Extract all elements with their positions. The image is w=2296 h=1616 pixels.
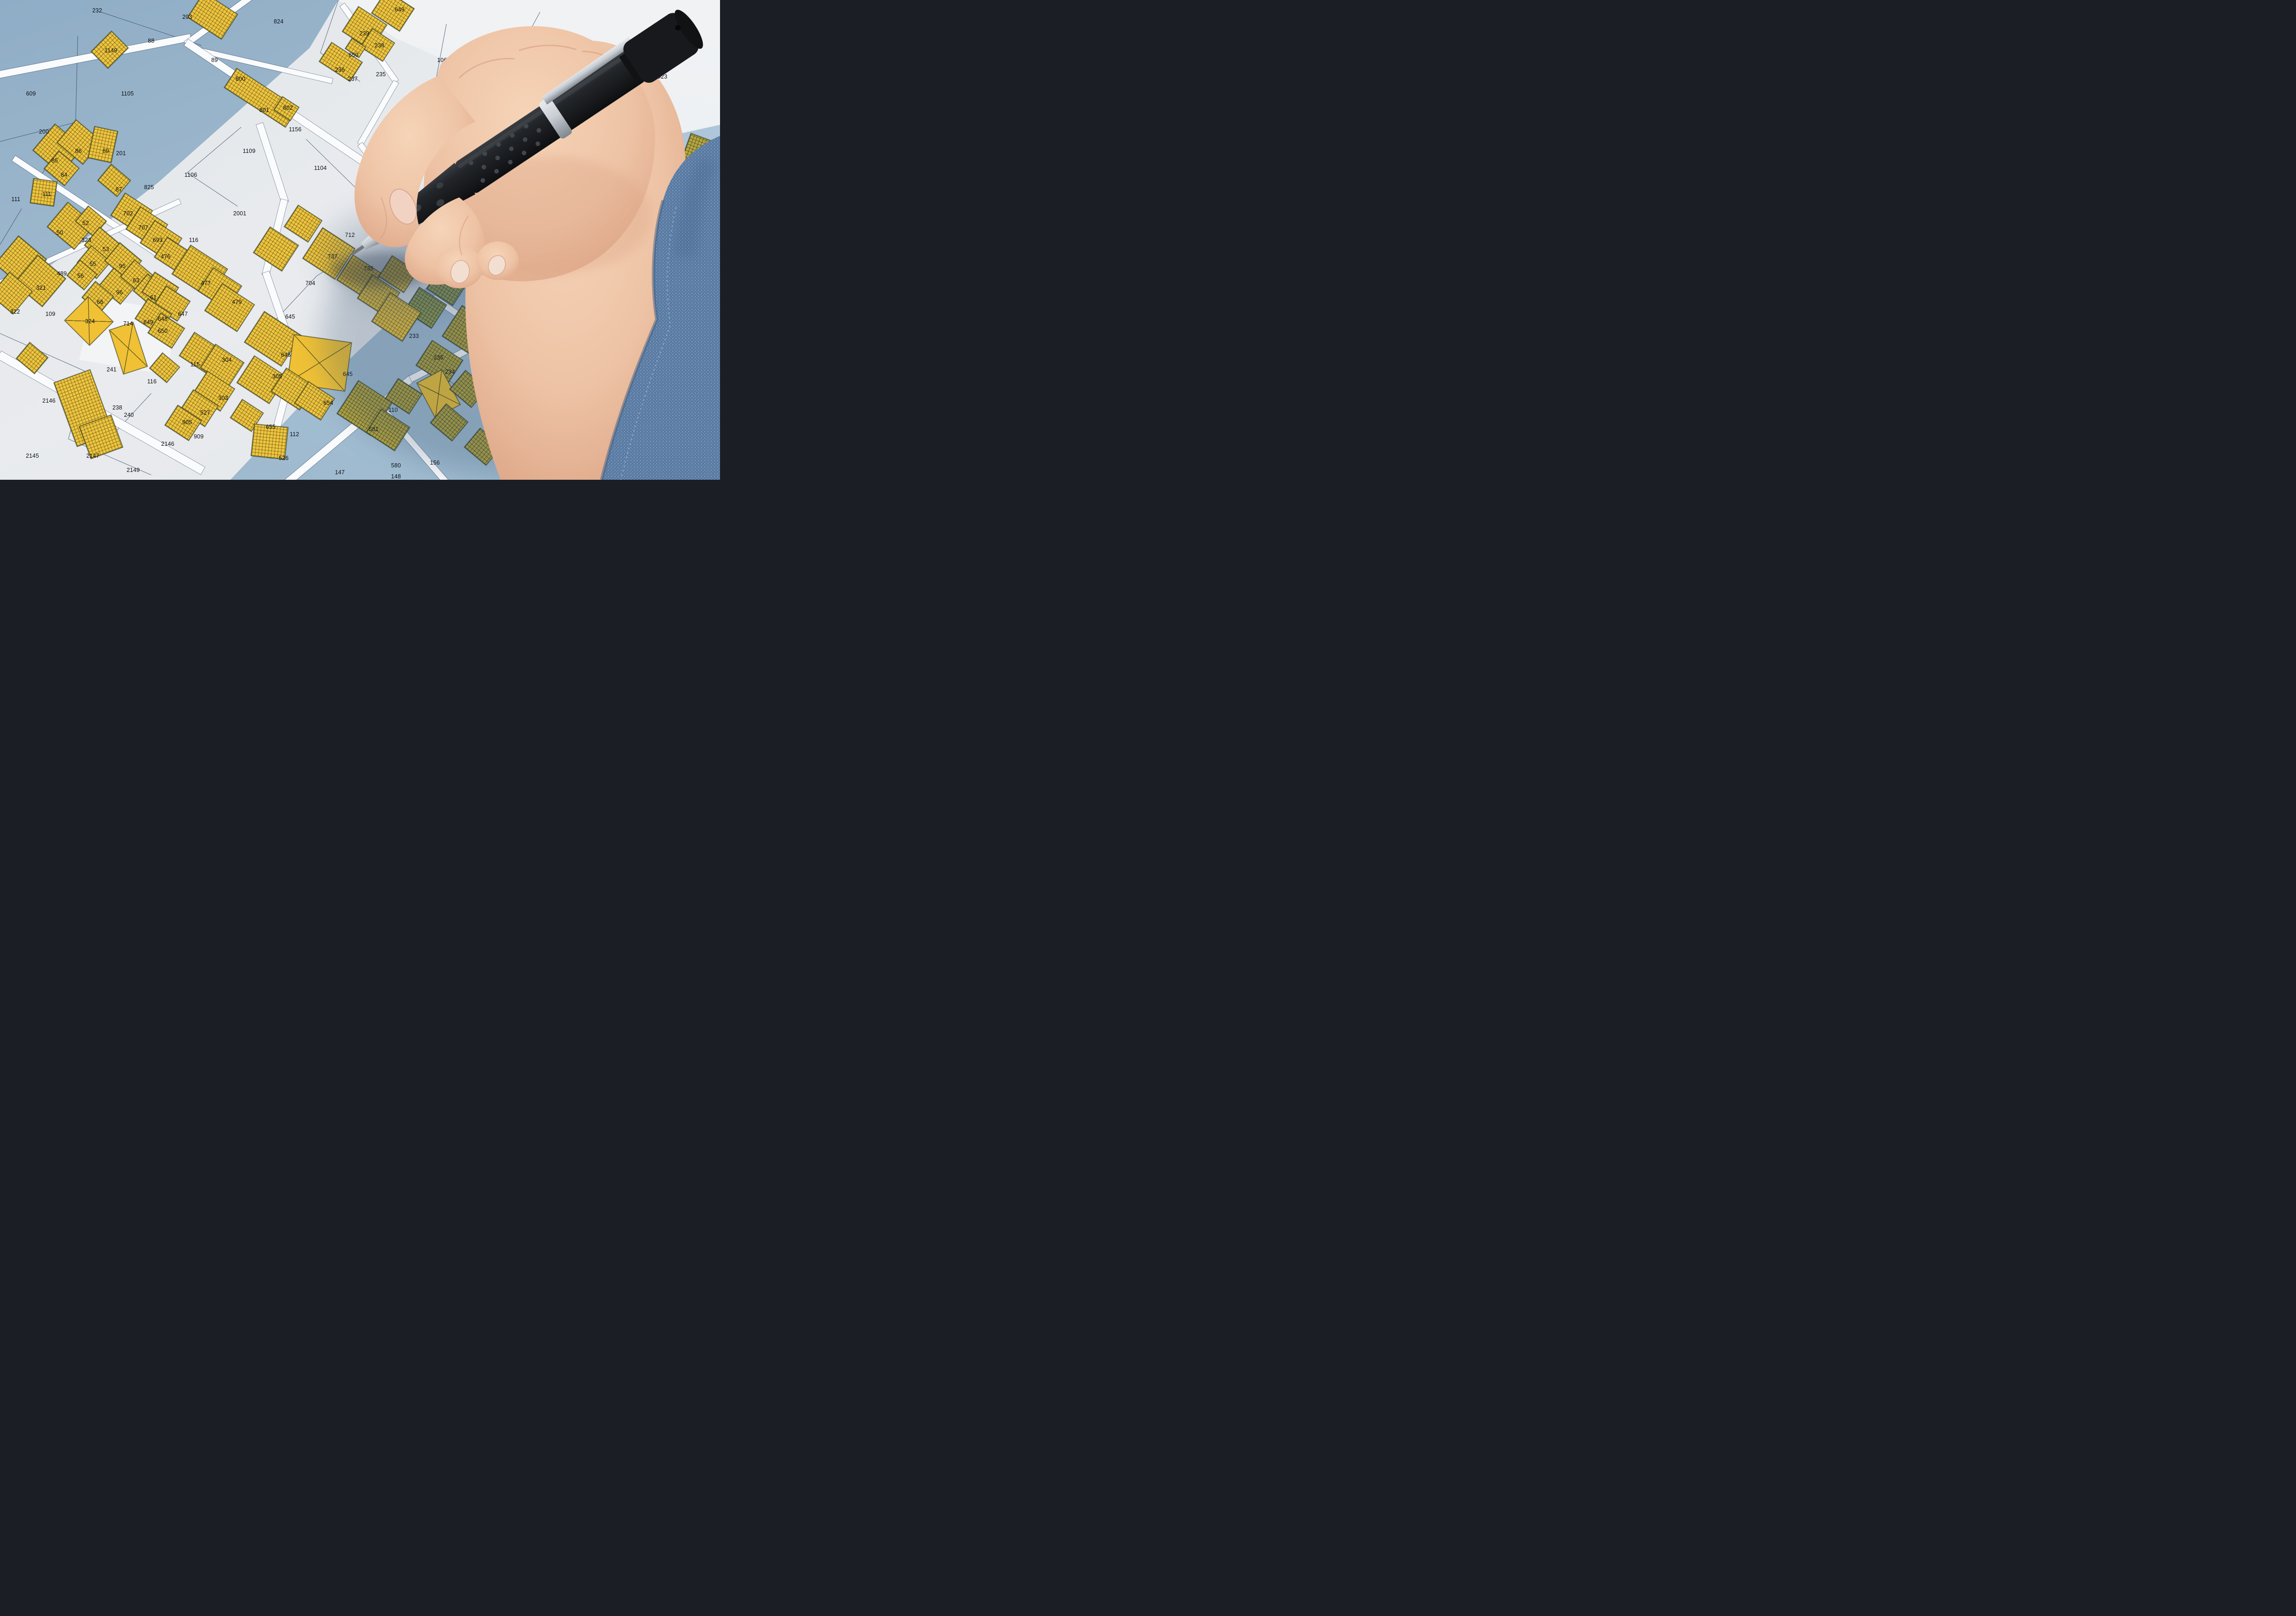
hand-pen-overlay [0,0,720,480]
cadastral-map-image: 2322038248811496492392386502362372351061… [0,0,720,480]
